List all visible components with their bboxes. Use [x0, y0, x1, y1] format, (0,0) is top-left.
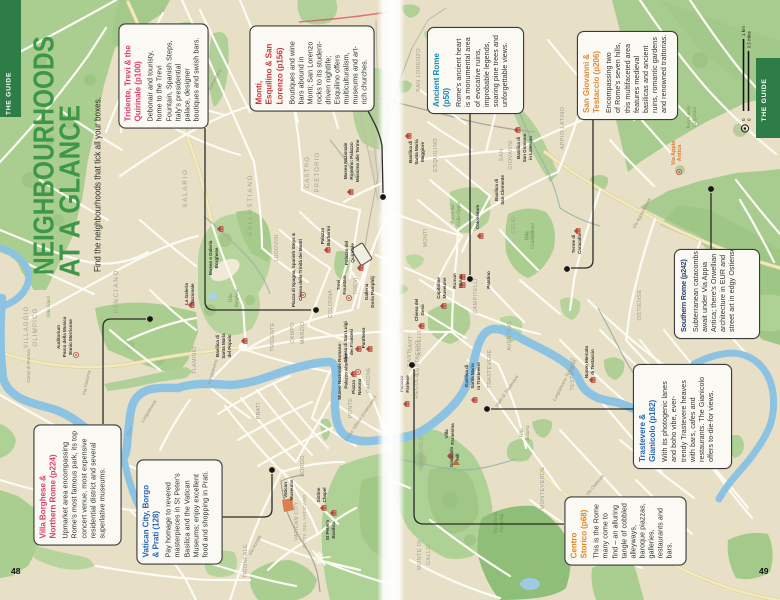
svg-text:MONTEVERDE: MONTEVERDE [540, 467, 546, 510]
svg-text:Palazzo: Palazzo [320, 228, 325, 245]
svg-text:San Clemente: San Clemente [500, 175, 505, 205]
svg-text:Gianicolo: Gianicolo [449, 447, 454, 468]
svg-text:Chapel: Chapel [322, 487, 327, 502]
svg-text:Nuovo Mercato: Nuovo Mercato [584, 345, 589, 378]
svg-text:Celimontana: Celimontana [531, 223, 536, 249]
svg-text:Maggiore: Maggiore [420, 141, 425, 162]
svg-text:Palatino: Palatino [486, 271, 491, 289]
svg-text:Basilica di: Basilica di [494, 179, 499, 201]
svg-text:Chiesa di San Luigi: Chiesa di San Luigi [343, 321, 348, 362]
svg-text:Find the neighbourhoods that t: Find the neighbourhoods that tick all yo… [93, 97, 103, 272]
svg-text:Parco della: Parco della [687, 105, 692, 130]
svg-text:CAMPITELLI: CAMPITELLI [473, 278, 479, 313]
svg-text:LUDOVISI: LUDOVISI [274, 234, 280, 262]
svg-text:VATICAN CITY: VATICAN CITY [294, 501, 300, 540]
svg-text:Gesù: Gesù [420, 304, 425, 316]
svg-text:Villa: Villa [520, 428, 525, 438]
svg-text:Massimo alle Terme: Massimo alle Terme [355, 139, 360, 182]
svg-text:Roman: Roman [452, 273, 457, 289]
svg-text:Sciarra: Sciarra [526, 425, 531, 441]
svg-text:Trevi: Trevi [336, 280, 341, 290]
svg-text:CAMPO: CAMPO [290, 322, 296, 344]
svg-text:La Galeria: La Galeria [184, 283, 189, 305]
svg-text:Farnesina: Farnesina [450, 423, 455, 445]
svg-text:Museums: Museums [442, 277, 447, 298]
svg-text:in Laterano: in Laterano [528, 136, 533, 160]
svg-text:Chiesa della Trinità dei Monti: Chiesa della Trinità dei Monti [298, 239, 303, 301]
svg-text:Caracalla: Caracalla [577, 234, 582, 254]
svg-text:Antica: Antica [677, 144, 683, 161]
svg-text:AT A GLANCE: AT A GLANCE [55, 105, 87, 277]
svg-text:Colosseum: Colosseum [475, 205, 480, 229]
svg-text:dei Francesi: dei Francesi [349, 329, 354, 355]
svg-text:VILLAGGIO: VILLAGGIO [24, 306, 30, 349]
svg-text:Basilica di: Basilica di [408, 141, 413, 163]
svg-text:THE GUIDE: THE GUIDE [761, 78, 768, 121]
svg-text:in Trastevere: in Trastevere [476, 362, 481, 390]
svg-text:Hill: Hill [455, 454, 460, 461]
svg-text:Pantheon: Pantheon [361, 327, 366, 348]
svg-text:TRASTEVERE: TRASTEVERE [487, 350, 493, 389]
svg-text:PARIONE: PARIONE [366, 367, 372, 393]
svg-text:APPIO LATINO: APPIO LATINO [560, 106, 566, 149]
svg-text:Romano: Palazzo: Romano: Palazzo [349, 142, 354, 180]
svg-text:Museo Nazionale: Museo Nazionale [343, 142, 348, 179]
svg-text:REGOLA: REGOLA [414, 373, 420, 398]
svg-text:Quirinale: Quirinale [350, 243, 355, 263]
svg-text:SANT': SANT' [408, 334, 414, 352]
svg-text:PINCIANO: PINCIANO [113, 269, 120, 313]
svg-text:Pamphilj: Pamphilj [500, 513, 505, 533]
svg-text:Borghese: Borghese [235, 288, 240, 307]
svg-text:Museums: Museums [289, 479, 294, 500]
svg-text:Borghese: Borghese [214, 247, 219, 268]
svg-text:Basilica di: Basilica di [215, 335, 220, 357]
svg-text:di Testaccio: di Testaccio [590, 349, 595, 375]
svg-text:MONTE DI: MONTE DI [417, 540, 423, 570]
svg-text:Sistine: Sistine [316, 487, 321, 502]
svg-text:BORGO: BORGO [300, 455, 306, 477]
svg-text:Vatican: Vatican [283, 482, 288, 498]
svg-text:Terme di: Terme di [571, 235, 576, 253]
svg-text:0: 0 [747, 118, 752, 121]
svg-text:Villa: Villa [229, 293, 234, 303]
svg-text:Auditorium: Auditorium [56, 325, 61, 349]
svg-text:GIANICOLO: GIANICOLO [419, 436, 425, 471]
svg-text:Villa: Villa [444, 429, 449, 439]
svg-text:MONTI: MONTI [423, 228, 429, 247]
svg-text:SAN LORENZO: SAN LORENZO [416, 48, 422, 92]
svg-text:TREVI: TREVI [353, 277, 359, 294]
svg-text:Museo e Galeria: Museo e Galeria [208, 240, 213, 275]
svg-text:Villa Doria: Villa Doria [494, 511, 499, 534]
svg-text:TRIDENTE: TRIDENTE [270, 322, 276, 351]
svg-text:SAN: SAN [499, 149, 505, 162]
svg-text:Farnese: Farnese [405, 375, 410, 393]
svg-text:PRETORIO: PRETORIO [315, 152, 321, 193]
svg-text:ANGELO: ANGELO [417, 330, 423, 356]
svg-text:FLAMINIO: FLAMINIO [192, 346, 198, 374]
svg-text:GALLO: GALLO [426, 544, 432, 565]
svg-text:TRIONFALE: TRIONFALE [243, 544, 249, 578]
svg-text:Forum: Forum [458, 274, 463, 288]
svg-text:Caffarella: Caffarella [693, 106, 698, 127]
svg-text:CELIO: CELIO [511, 216, 517, 234]
svg-text:Colle Oppio: Colle Oppio [457, 201, 462, 226]
svg-text:0.5 miles: 0.5 miles [747, 31, 752, 48]
svg-text:OSTIENSE: OSTIENSE [637, 289, 643, 320]
svg-text:San Giovanni: San Giovanni [522, 134, 527, 163]
svg-text:Museo Nazionale Romano:: Museo Nazionale Romano: [337, 342, 342, 400]
svg-text:COLONNA: COLONNA [328, 290, 334, 319]
svg-text:Basilica di: Basilica di [516, 137, 521, 159]
svg-text:1 km: 1 km [741, 26, 746, 36]
svg-text:Palazzo del: Palazzo del [344, 241, 349, 265]
svg-text:Navona: Navona [357, 378, 362, 395]
svg-text:SALLUSTIANO: SALLUSTIANO [247, 174, 254, 236]
svg-text:Nazionale: Nazionale [190, 283, 195, 304]
svg-text:PRATI: PRATI [256, 402, 262, 419]
svg-text:GIOVANNI: GIOVANNI [508, 140, 514, 170]
svg-text:St Peter's: St Peter's [325, 519, 330, 540]
svg-text:Basilica: Basilica [331, 521, 336, 538]
svg-text:OLIMPICO: OLIMPICO [33, 308, 39, 347]
svg-text:Villa: Villa [525, 231, 530, 241]
svg-text:Santa Maria: Santa Maria [221, 333, 226, 359]
svg-text:Capitoline: Capitoline [436, 277, 441, 299]
svg-text:Ennio Morricone: Ennio Morricone [68, 319, 73, 355]
svg-text:MARZIO: MARZIO [300, 321, 306, 344]
svg-text:0: 0 [741, 118, 746, 121]
svg-text:Corso di Francia: Corso di Francia [26, 349, 31, 383]
svg-text:PONTE: PONTE [348, 398, 354, 418]
svg-text:CITTÀ DEL VATICANO: CITTÀ DEL VATICANO [301, 494, 307, 548]
svg-text:SALARIO: SALARIO [182, 168, 189, 207]
svg-text:Santa Maria: Santa Maria [414, 139, 419, 165]
svg-text:Galleria: Galleria [364, 283, 369, 300]
svg-text:del Popolo: del Popolo [227, 334, 232, 357]
svg-text:Piazza: Piazza [351, 380, 356, 394]
svg-text:CASTRO: CASTRO [305, 156, 311, 188]
svg-text:THE GUIDE: THE GUIDE [6, 72, 13, 115]
svg-text:Chiesa del: Chiesa del [414, 299, 419, 321]
svg-text:AVENTINO: AVENTINO [507, 321, 513, 351]
svg-text:Barberini: Barberini [326, 226, 331, 246]
svg-text:Doria Pamphilj: Doria Pamphilj [370, 276, 375, 307]
svg-text:Piazza di Spagna, Spanish Step: Piazza di Spagna, Spanish Steps & [291, 232, 296, 307]
svg-text:Fountain: Fountain [342, 275, 347, 294]
svg-text:Villa Glori: Villa Glori [47, 296, 52, 318]
svg-text:Parco del: Parco del [451, 204, 456, 225]
svg-text:ESQUILINO: ESQUILINO [433, 138, 439, 172]
svg-text:Parco della Musica: Parco della Musica [62, 316, 67, 357]
